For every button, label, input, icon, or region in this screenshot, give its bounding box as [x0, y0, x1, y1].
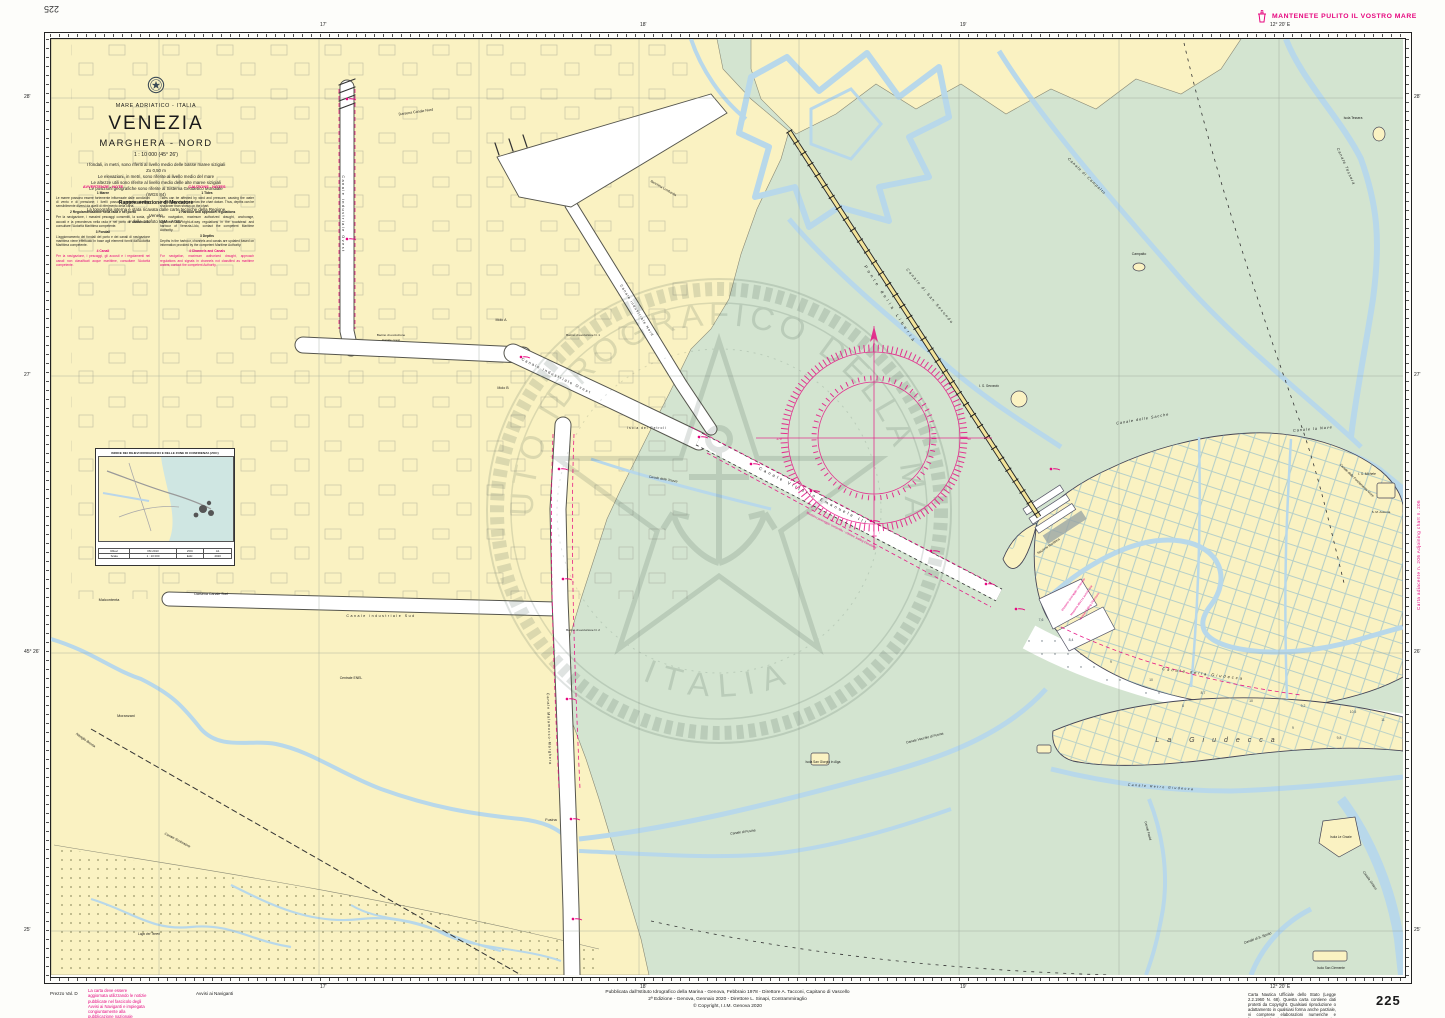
note-heading: 3 Depths — [160, 234, 254, 238]
note-heading: 4 Channels and Canals — [160, 249, 254, 253]
note-body: For navigation, maximum authorized draug… — [160, 254, 254, 266]
notices-to-mariners: Avvisi ai Naviganti — [196, 991, 233, 996]
chart-title: VENEZIA — [83, 111, 229, 137]
map-label: Isola San Clemente — [1317, 966, 1345, 970]
map-label: Molo A — [496, 318, 508, 322]
border-ticks-bottom — [50, 978, 1404, 981]
map-label: Isola Le Grazie — [1330, 835, 1352, 839]
notes-block: AVVERTENZE - NOTE 1 Maree Le maree posso… — [56, 184, 254, 267]
map-label: Isola Tessera — [1344, 116, 1363, 120]
graticule-label: 17' — [320, 984, 327, 990]
note-body: Depths in the harbour, channels and cana… — [160, 239, 254, 247]
note-body: Per la navigazione, i pescaggi, gli acco… — [56, 254, 150, 266]
note-heading: 2 Harbour and approach regulations — [160, 210, 254, 214]
depth-sounding: 8 — [1182, 704, 1184, 708]
note-body: For navigation, maximum authorized draug… — [160, 215, 254, 232]
border-ticks-right — [1406, 38, 1409, 976]
zoc-cell: 1 : 10 000 — [130, 554, 176, 559]
price-label: Prezzo Val. D — [50, 991, 78, 996]
notes-italian: AVVERTENZE - NOTE 1 Maree Le maree posso… — [56, 184, 150, 267]
map-label: Canale ovest — [382, 338, 400, 342]
graticule-label: 12° 20' E — [1270, 984, 1290, 990]
map-label: I. S. Secondo — [979, 384, 999, 388]
zoc-inset-map — [98, 456, 234, 542]
depth-sounding: 10,5 — [1350, 710, 1357, 714]
depth-sounding: 9 — [1110, 660, 1112, 664]
chart-region: MARE ADRIATICO - ITALIA — [83, 103, 229, 110]
chart-number: 225 — [1376, 993, 1401, 1008]
depth-sounding: 8,7 — [1201, 691, 1206, 695]
depth-sounding: 7,6 — [1039, 618, 1044, 622]
map-label: Canale industriale Ovest — [341, 175, 345, 252]
depth-sounding: 9,2 — [1301, 704, 1306, 708]
publication-line-1: Pubblicata dall'Istituto Idrografico del… — [495, 990, 960, 997]
update-note: La carta deve essere aggiornata utilizza… — [88, 988, 148, 1018]
depth-sounding: 11 — [1381, 718, 1385, 722]
graticule-label: 28' — [1414, 94, 1421, 100]
note-heading: 1 Maree — [56, 191, 150, 195]
note-heading: 4 Canali — [56, 249, 150, 253]
adjoining-chart-note: Carta adiacente n. 206 Adjoining chart n… — [1416, 280, 1421, 610]
chart-sheet: 225 MANTENETE PULITO IL VOSTRO MARE — [0, 0, 1445, 1018]
graticule-label: 17' — [320, 22, 327, 28]
publication-block: Pubblicata dall'Istituto Idrografico del… — [495, 990, 960, 1011]
map-label: Campalto — [1132, 252, 1147, 256]
note-body: L'aggiornamento dei fondali del porto e … — [56, 235, 150, 247]
zoc-cell: 2020 — [204, 554, 232, 559]
map-label: Malcontenta — [99, 598, 121, 602]
map-label: Isola San Giorgio in Alga — [806, 760, 841, 764]
map-label: Bacino di evoluzione N. 2 — [566, 628, 600, 632]
map-label: 270 — [776, 437, 781, 441]
graticule-label: 12° 20' E — [1270, 22, 1290, 28]
iim-crest-icon — [147, 76, 165, 94]
map-label: I. S. Michele — [1358, 472, 1376, 476]
depth-sounding: 8,4 — [1069, 638, 1074, 642]
map-label: La Giudecca — [1155, 737, 1282, 744]
note-body: Le maree possono essere fortemente influ… — [56, 196, 150, 208]
note-heading: 3 Fondali — [56, 230, 150, 234]
map-label: Canale industriale Sud — [346, 614, 415, 618]
map-label: Bacino di evoluzione — [377, 333, 406, 337]
copyright-line: © Copyright, I.I.M. Genova 2020 — [495, 1004, 960, 1011]
graticule-label: 28' — [24, 94, 31, 100]
graticule-label: 25' — [1414, 927, 1421, 933]
zoc-inset: INDICE DEI RILIEVI IDROGRAFICI E DELLE Z… — [95, 448, 235, 566]
zoc-table: Rilievi IIM 2013 ZOC A1 Scala 1 : 10 000… — [98, 548, 232, 559]
graticule-label: 19' — [960, 22, 967, 28]
notes-it-header: AVVERTENZE - NOTE — [56, 184, 150, 189]
depth-sounding: 9,8 — [1337, 736, 1342, 740]
graticule-label: 45° 26' — [24, 649, 39, 655]
map-label: Isola dei Petroli — [627, 426, 667, 430]
map-label: Darsena Canale Sud — [194, 592, 227, 596]
graticule-label: 27' — [24, 372, 31, 378]
map-canvas: ISTITUTO IDROGRAFICO DELLA MARINA ITALIA — [51, 39, 1403, 975]
note-heading: 2 Regolamentazione nella rada e nel port… — [56, 210, 150, 214]
map-label: Lago dei Teneri — [138, 932, 160, 936]
map-label: 180 — [871, 534, 876, 538]
map-label: Moranzani — [117, 714, 135, 718]
publication-line-2: 2ª Edizione - Genova, Gennaio 2020 - Dir… — [495, 997, 960, 1004]
border-ticks-left — [46, 38, 49, 976]
border-ticks-top — [50, 34, 1404, 37]
map-label: Bacino di evoluzione N. 1 — [566, 333, 600, 337]
map-label: Molo B — [497, 386, 509, 390]
note-body: Tides can be affected by wind and pressu… — [160, 196, 254, 208]
zoc-cell: Scala — [99, 554, 130, 559]
map-label: S. M. Assunta — [1372, 510, 1391, 514]
depth-sounding: 10 — [1249, 699, 1253, 703]
map-label: Centrale ENEL — [340, 676, 363, 680]
map-label: 90 — [967, 437, 971, 441]
zoc-inset-title: INDICE DEI RILIEVI IDROGRAFICI E DELLE Z… — [98, 451, 232, 455]
notes-english: CAUTIONS - NOTES 1 Tides Tides can be af… — [160, 184, 254, 267]
notes-en-header: CAUTIONS - NOTES — [160, 184, 254, 189]
graticule-label: 19' — [960, 984, 967, 990]
depth-sounding: 10 — [1149, 678, 1153, 682]
graticule-label: 25' — [24, 927, 31, 933]
keep-sea-clean-icon — [1256, 10, 1268, 23]
graticule-label: 26' — [1414, 649, 1421, 655]
chart-scale: 1 : 10 000 (45° 26') — [83, 152, 229, 159]
map-label: Fusina — [545, 818, 557, 822]
note-heading: 1 Tides — [160, 191, 254, 195]
note-body: Per la navigazione, i massimi pescaggi c… — [56, 215, 150, 227]
graticule-label: 18' — [640, 22, 647, 28]
zoc-cell: Ediz. — [176, 554, 204, 559]
corner-chart-number: 225 — [44, 4, 59, 14]
chart-subtitle: MARGHERA - NORD — [83, 138, 229, 151]
keep-sea-clean-slogan: MANTENETE PULITO IL VOSTRO MARE — [1272, 13, 1417, 20]
legal-notice: Carta Nautica Ufficiale dello Stato (Leg… — [1248, 992, 1336, 1018]
depth-sounding: 9 — [1292, 726, 1294, 730]
